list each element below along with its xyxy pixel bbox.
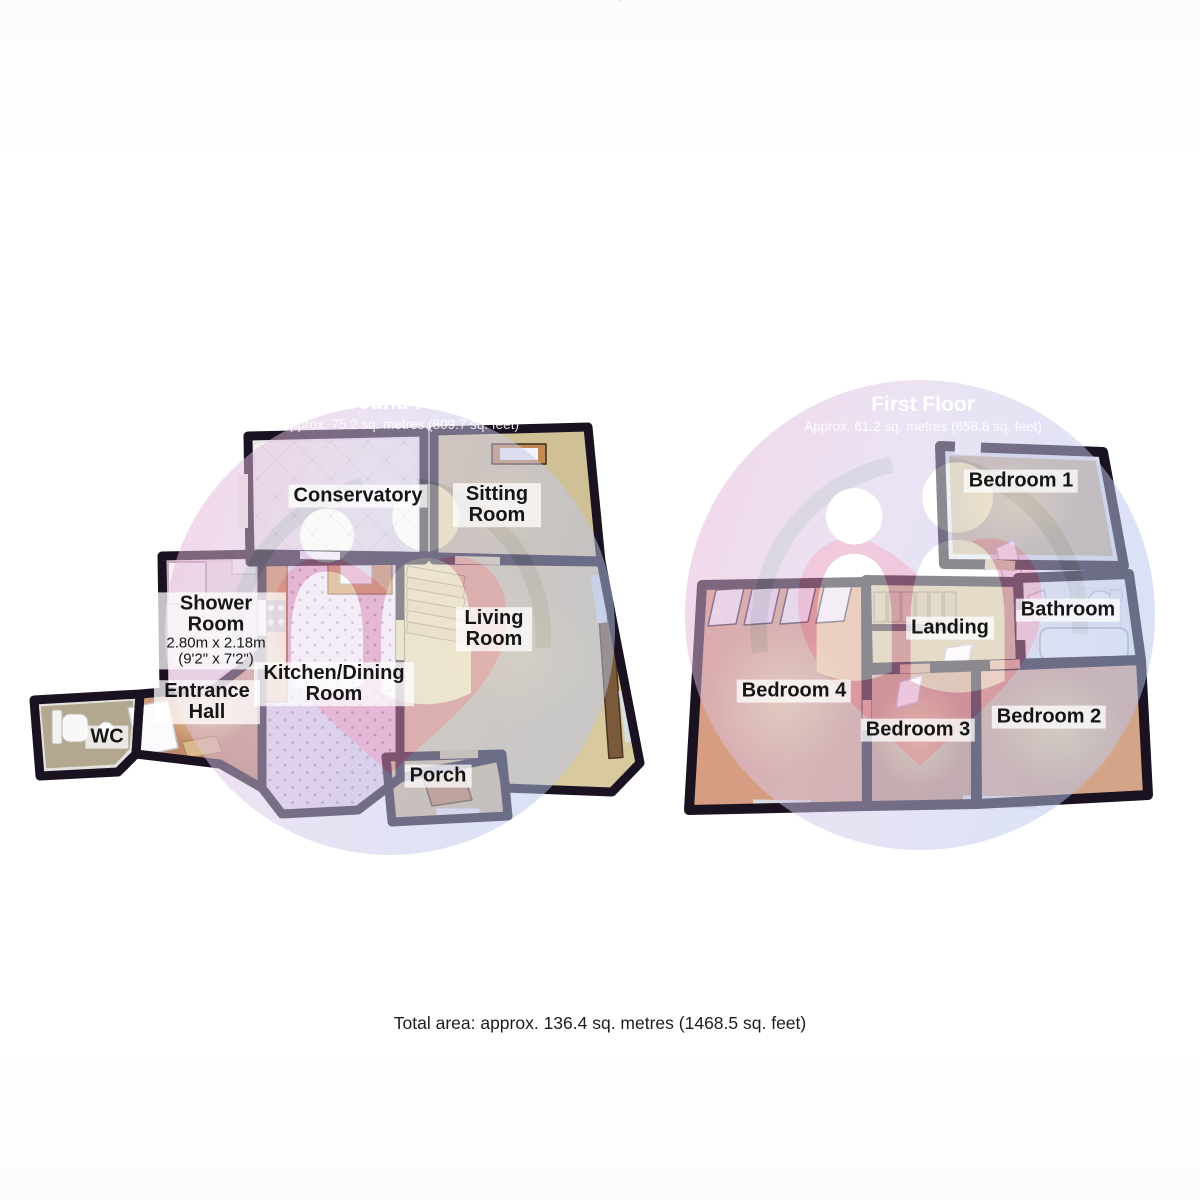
room-label-landing: Landing	[906, 617, 994, 640]
room-label-shower-room: Shower Room 2.80m x 2.18m (9'2" x 7'2")	[146, 592, 286, 669]
room-label-sitting-room: Sitting Room	[453, 483, 541, 527]
shower-room-dimensions-metric: 2.80m x 2.18m	[151, 635, 281, 652]
room-label-bedroom-3: Bedroom 3	[861, 719, 975, 742]
room-label-living-room: Living Room	[456, 607, 532, 651]
room-label-bedroom-1: Bedroom 1	[964, 470, 1078, 493]
shower-room-name: Shower Room	[173, 593, 259, 635]
floorplan-page: Ground Floor Approx. 75.2 sq. metres (80…	[0, 0, 1200, 1200]
room-label-bedroom-2: Bedroom 2	[992, 706, 1106, 729]
sitting-window	[492, 444, 546, 464]
room-label-wc: WC	[85, 726, 128, 749]
room-label-bedroom-4: Bedroom 4	[737, 680, 851, 703]
room-label-kitchen-dining: Kitchen/Dining Room	[254, 662, 414, 706]
room-label-bathroom: Bathroom	[1016, 599, 1120, 622]
total-area-caption: Total area: approx. 136.4 sq. metres (14…	[0, 1013, 1200, 1034]
room-label-entrance-hall: Entrance Hall	[154, 680, 260, 724]
room-label-porch: Porch	[405, 765, 472, 788]
room-label-conservatory: Conservatory	[289, 485, 428, 508]
floor-plan-first	[620, 0, 1148, 813]
bedroom2-light-glow	[992, 674, 1124, 786]
